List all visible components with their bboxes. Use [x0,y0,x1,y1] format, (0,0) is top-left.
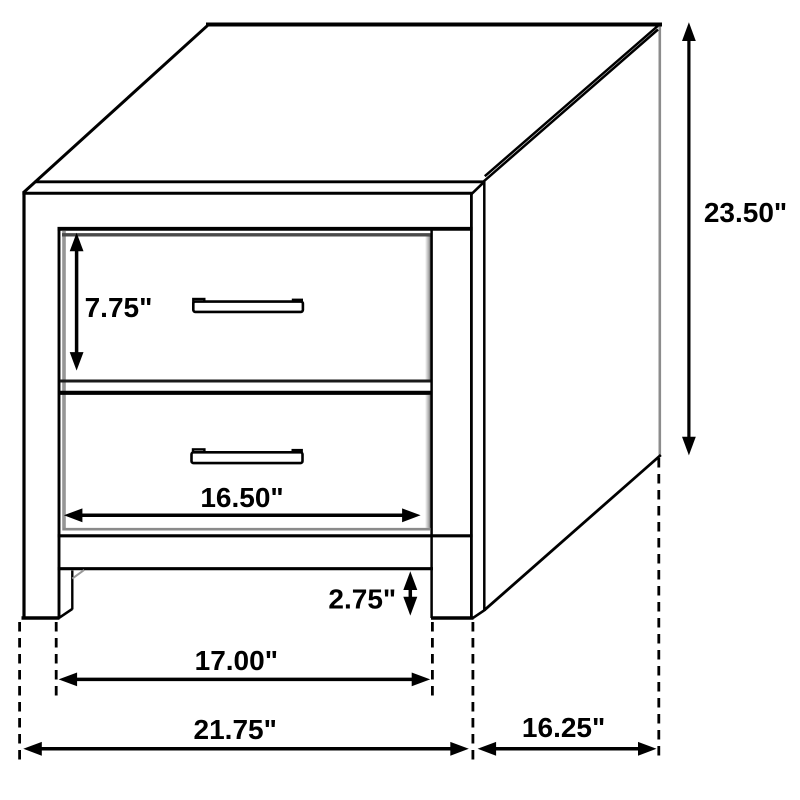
svg-text:16.25": 16.25" [522,712,605,743]
svg-text:16.50": 16.50" [200,482,283,513]
svg-text:21.75": 21.75" [194,714,277,745]
svg-text:2.75": 2.75" [328,584,396,615]
svg-text:17.00": 17.00" [195,645,278,676]
svg-text:23.50": 23.50" [704,197,787,228]
svg-text:7.75": 7.75" [85,292,153,323]
